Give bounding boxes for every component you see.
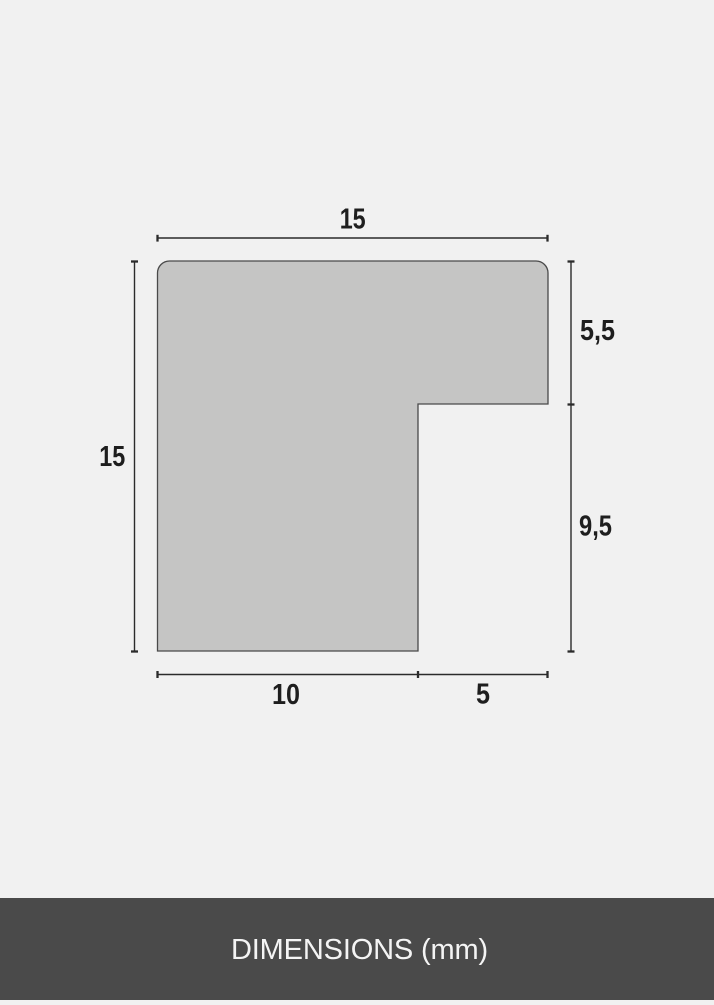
svg-text:5: 5: [476, 679, 490, 711]
svg-text:10: 10: [272, 679, 300, 711]
svg-text:5,5: 5,5: [580, 315, 615, 347]
svg-text:15: 15: [99, 441, 125, 473]
svg-text:15: 15: [340, 204, 366, 236]
svg-text:9,5: 9,5: [579, 511, 612, 543]
